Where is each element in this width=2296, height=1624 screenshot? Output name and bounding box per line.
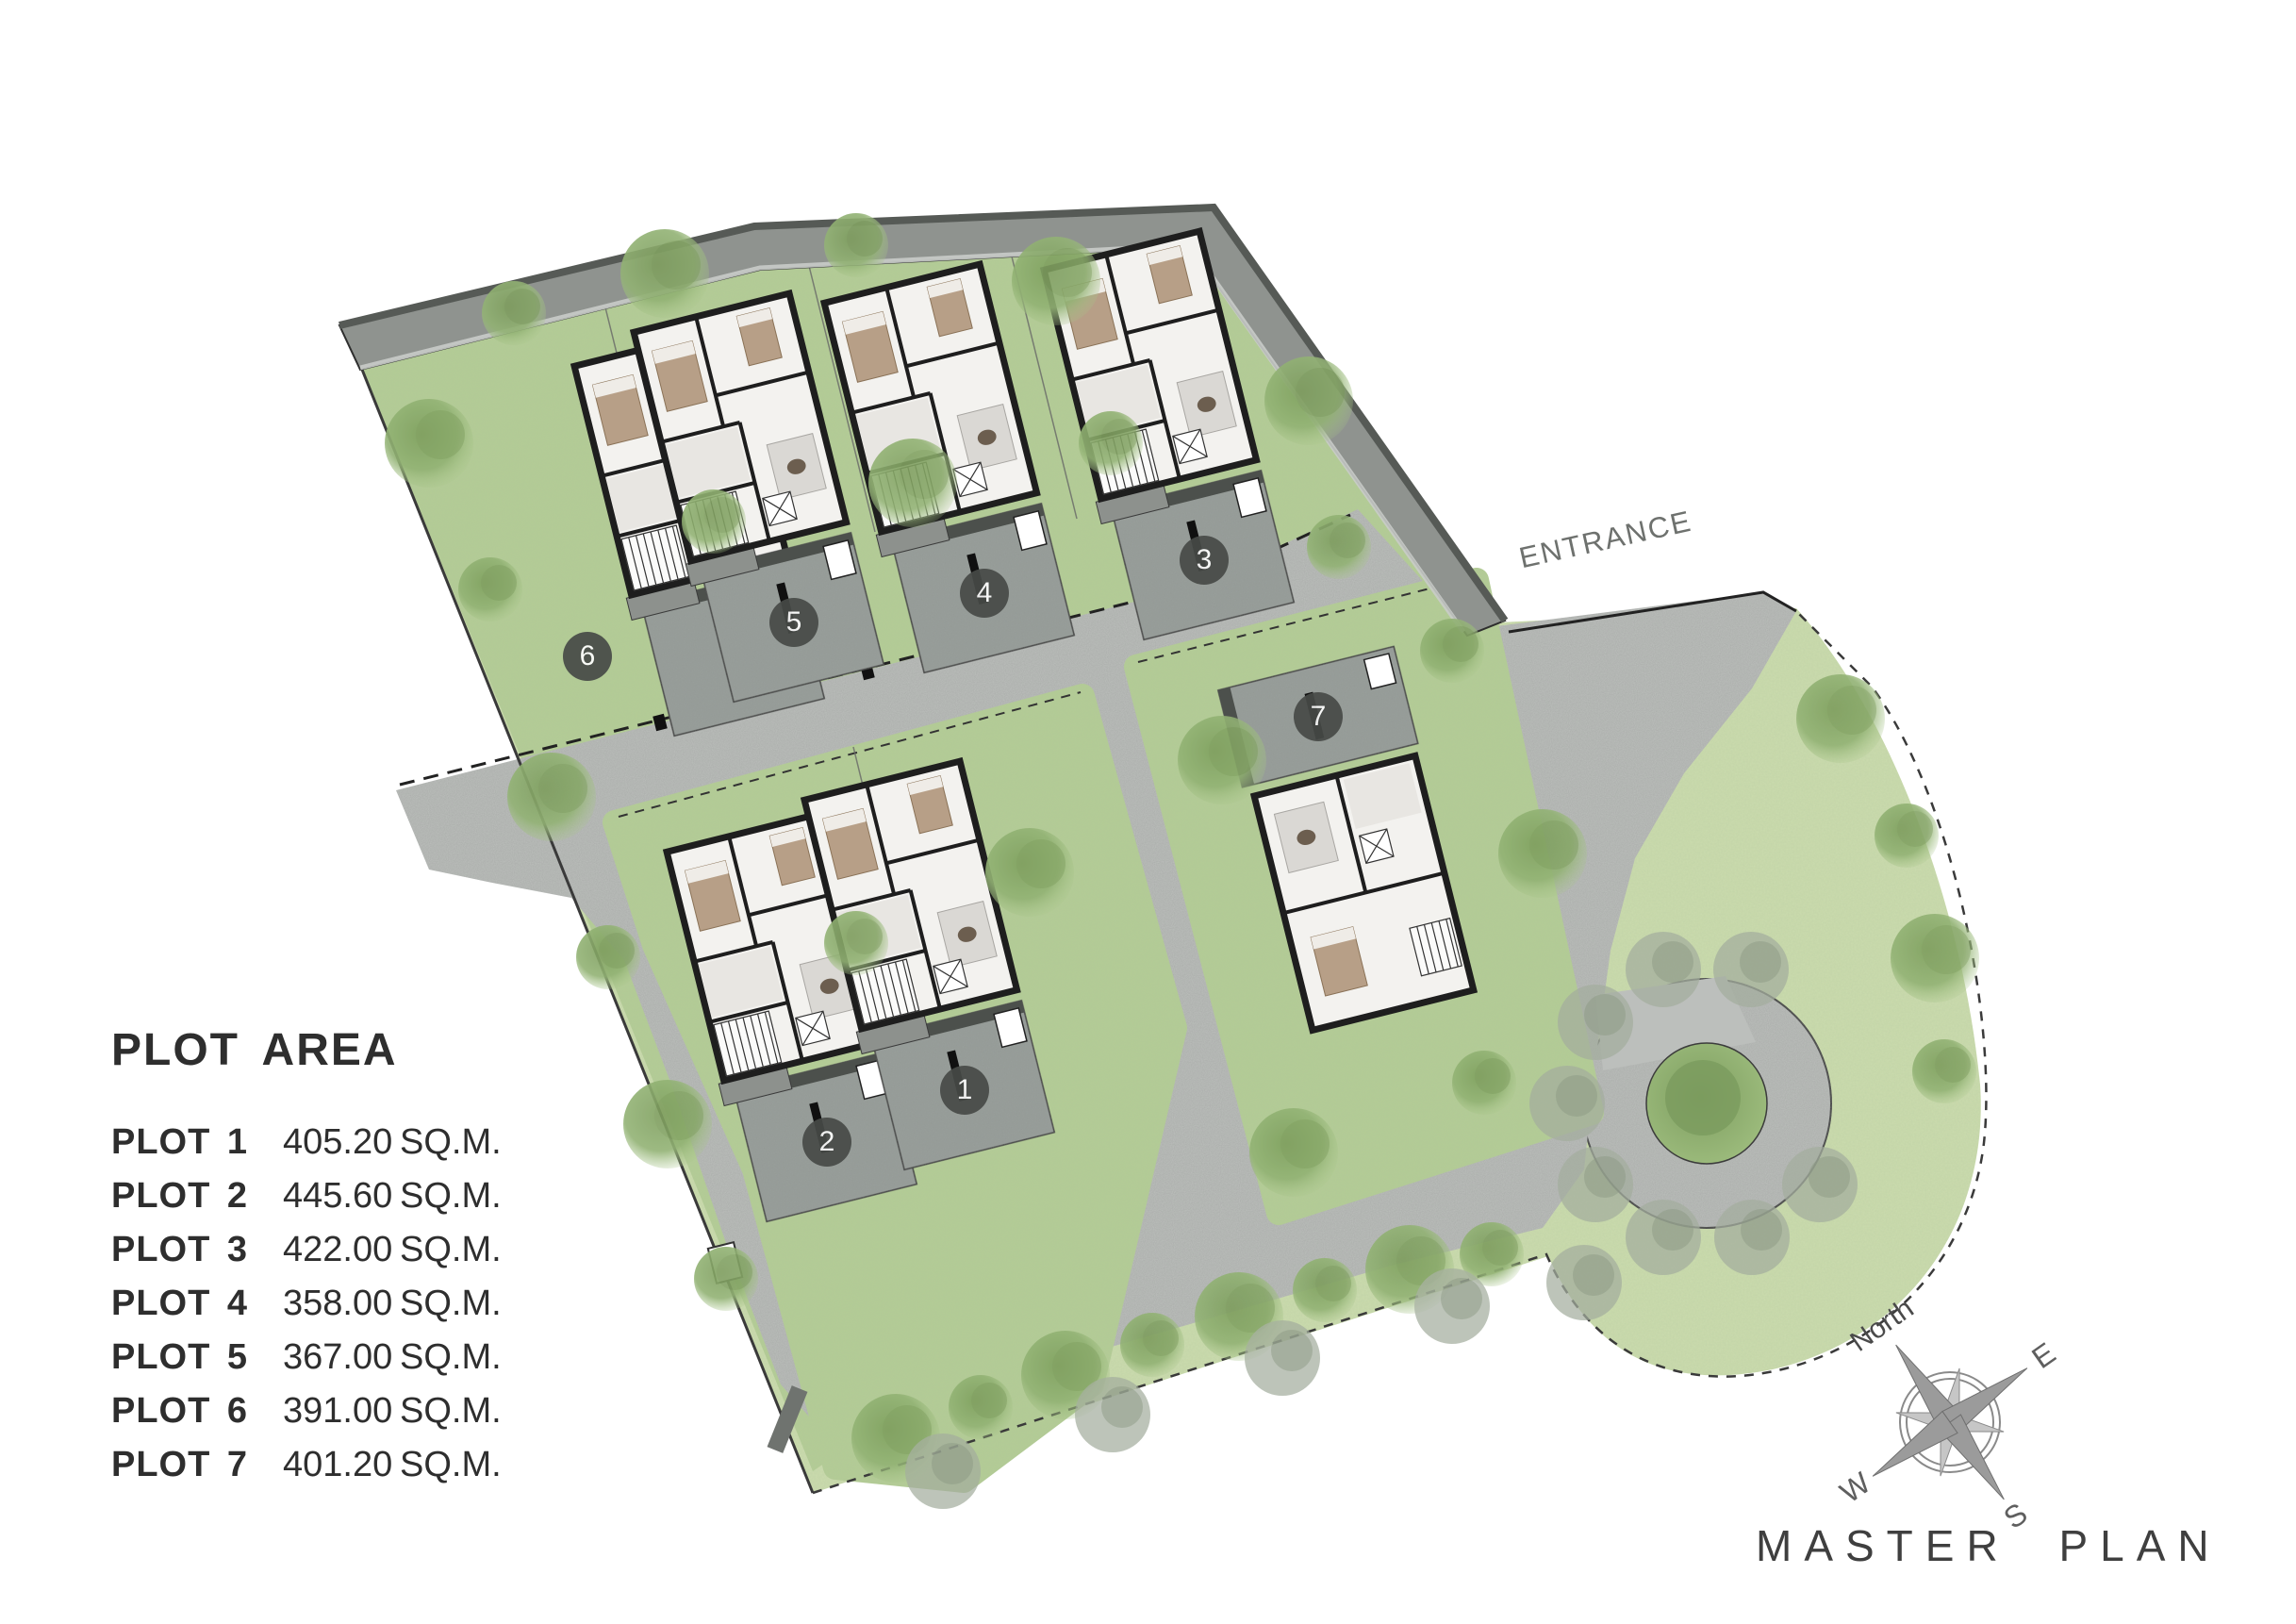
legend-row: PLOT 1405.20SQ.M. bbox=[111, 1116, 502, 1169]
legend-row: PLOT 6391.00SQ.M. bbox=[111, 1384, 502, 1438]
plot-area-value: 401.20 bbox=[283, 1438, 400, 1492]
plot-area-unit: SQ.M. bbox=[400, 1277, 502, 1331]
legend-row: PLOT 5367.00SQ.M. bbox=[111, 1331, 502, 1384]
page-title: MASTER PLAN bbox=[1756, 1520, 2222, 1571]
plot-area-value: 445.60 bbox=[283, 1169, 400, 1223]
plot-area-unit: SQ.M. bbox=[400, 1331, 502, 1384]
plot-label: PLOT 5 bbox=[111, 1331, 283, 1384]
plot-marker-4: 4 bbox=[960, 569, 1009, 618]
compass-east-label: E bbox=[2025, 1335, 2061, 1375]
master-plan-page: North E W S 1 2 3 4 5 6 7 ENTRANCE PLOT … bbox=[0, 0, 2296, 1624]
roundabout-tree bbox=[1665, 1060, 1741, 1135]
plot-area-value: 358.00 bbox=[283, 1277, 400, 1331]
plot-marker-6: 6 bbox=[563, 632, 612, 681]
legend-row: PLOT 3422.00SQ.M. bbox=[111, 1223, 502, 1277]
plot-marker-5: 5 bbox=[769, 598, 818, 647]
plot-area-value: 391.00 bbox=[283, 1384, 400, 1438]
plot-area-unit: SQ.M. bbox=[400, 1169, 502, 1223]
plot-label: PLOT 2 bbox=[111, 1169, 283, 1223]
plot-marker-1: 1 bbox=[940, 1066, 989, 1115]
plot-area-value: 405.20 bbox=[283, 1116, 400, 1169]
plot-area-value: 367.00 bbox=[283, 1331, 400, 1384]
plot-marker-3: 3 bbox=[1180, 536, 1229, 585]
plot-marker-2: 2 bbox=[802, 1118, 851, 1167]
compass-west-label: W bbox=[1834, 1465, 1877, 1509]
plot-area-unit: SQ.M. bbox=[400, 1116, 502, 1169]
legend-rows: PLOT 1405.20SQ.M. PLOT 2445.60SQ.M. PLOT… bbox=[111, 1116, 502, 1492]
plot-area-legend: PLOT AREA PLOT 1405.20SQ.M. PLOT 2445.60… bbox=[111, 1024, 502, 1492]
legend-row: PLOT 2445.60SQ.M. bbox=[111, 1169, 502, 1223]
legend-row: PLOT 7401.20SQ.M. bbox=[111, 1438, 502, 1492]
plot-label: PLOT 7 bbox=[111, 1438, 283, 1492]
plot-area-value: 422.00 bbox=[283, 1223, 400, 1277]
plot-marker-7: 7 bbox=[1294, 692, 1343, 741]
plot-label: PLOT 3 bbox=[111, 1223, 283, 1277]
plot-area-unit: SQ.M. bbox=[400, 1438, 502, 1492]
plot-label: PLOT 1 bbox=[111, 1116, 283, 1169]
legend-title: PLOT AREA bbox=[111, 1024, 502, 1076]
plot-area-unit: SQ.M. bbox=[400, 1384, 502, 1438]
legend-row: PLOT 4358.00SQ.M. bbox=[111, 1277, 502, 1331]
plot-label: PLOT 6 bbox=[111, 1384, 283, 1438]
plot-label: PLOT 4 bbox=[111, 1277, 283, 1331]
plot-area-unit: SQ.M. bbox=[400, 1223, 502, 1277]
